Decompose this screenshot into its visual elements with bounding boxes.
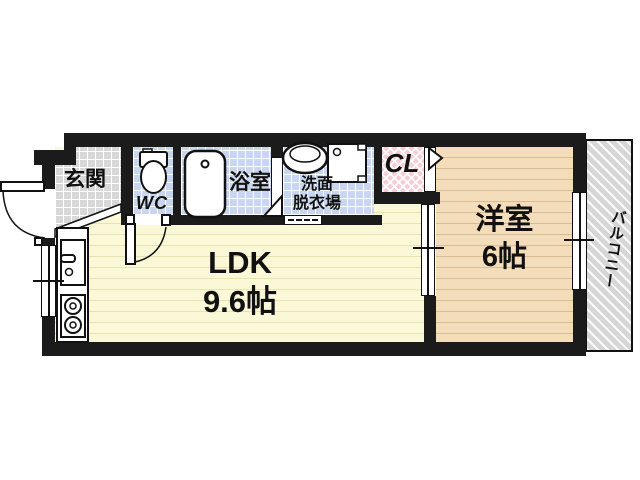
- bath-label: 浴室: [218, 171, 282, 195]
- stove-icon: [61, 295, 85, 337]
- ldk-name: LDK: [208, 245, 272, 280]
- floorplan-canvas: 玄関 WC 浴室 洗面 脱衣場 CL 洋室 6帖 LDK 9.6帖 バルコニー: [0, 0, 640, 480]
- washroom-label: 洗面 脱衣場: [281, 175, 353, 213]
- bath-door-triangle: [264, 196, 282, 216]
- washbasin-icon: [283, 143, 327, 173]
- ldk-area: 9.6帖: [203, 284, 277, 319]
- western-room-label: 洋室 6帖: [436, 202, 573, 276]
- entrance-door: [1, 182, 45, 238]
- ldk-label: LDK 9.6帖: [100, 243, 380, 321]
- washroom-label-line2: 脱衣場: [293, 195, 341, 212]
- genkan-label: 玄関: [52, 168, 118, 192]
- closet-door-triangle: [429, 148, 442, 169]
- kitchen-sink-icon: [61, 240, 85, 285]
- toilet-icon: [140, 149, 167, 193]
- western-room-name: 洋室: [475, 204, 533, 236]
- wc-label: WC: [131, 193, 173, 214]
- washroom-label-line1: 洗面: [301, 176, 333, 193]
- closet-label: CL: [380, 149, 424, 179]
- western-room-area: 6帖: [482, 241, 527, 273]
